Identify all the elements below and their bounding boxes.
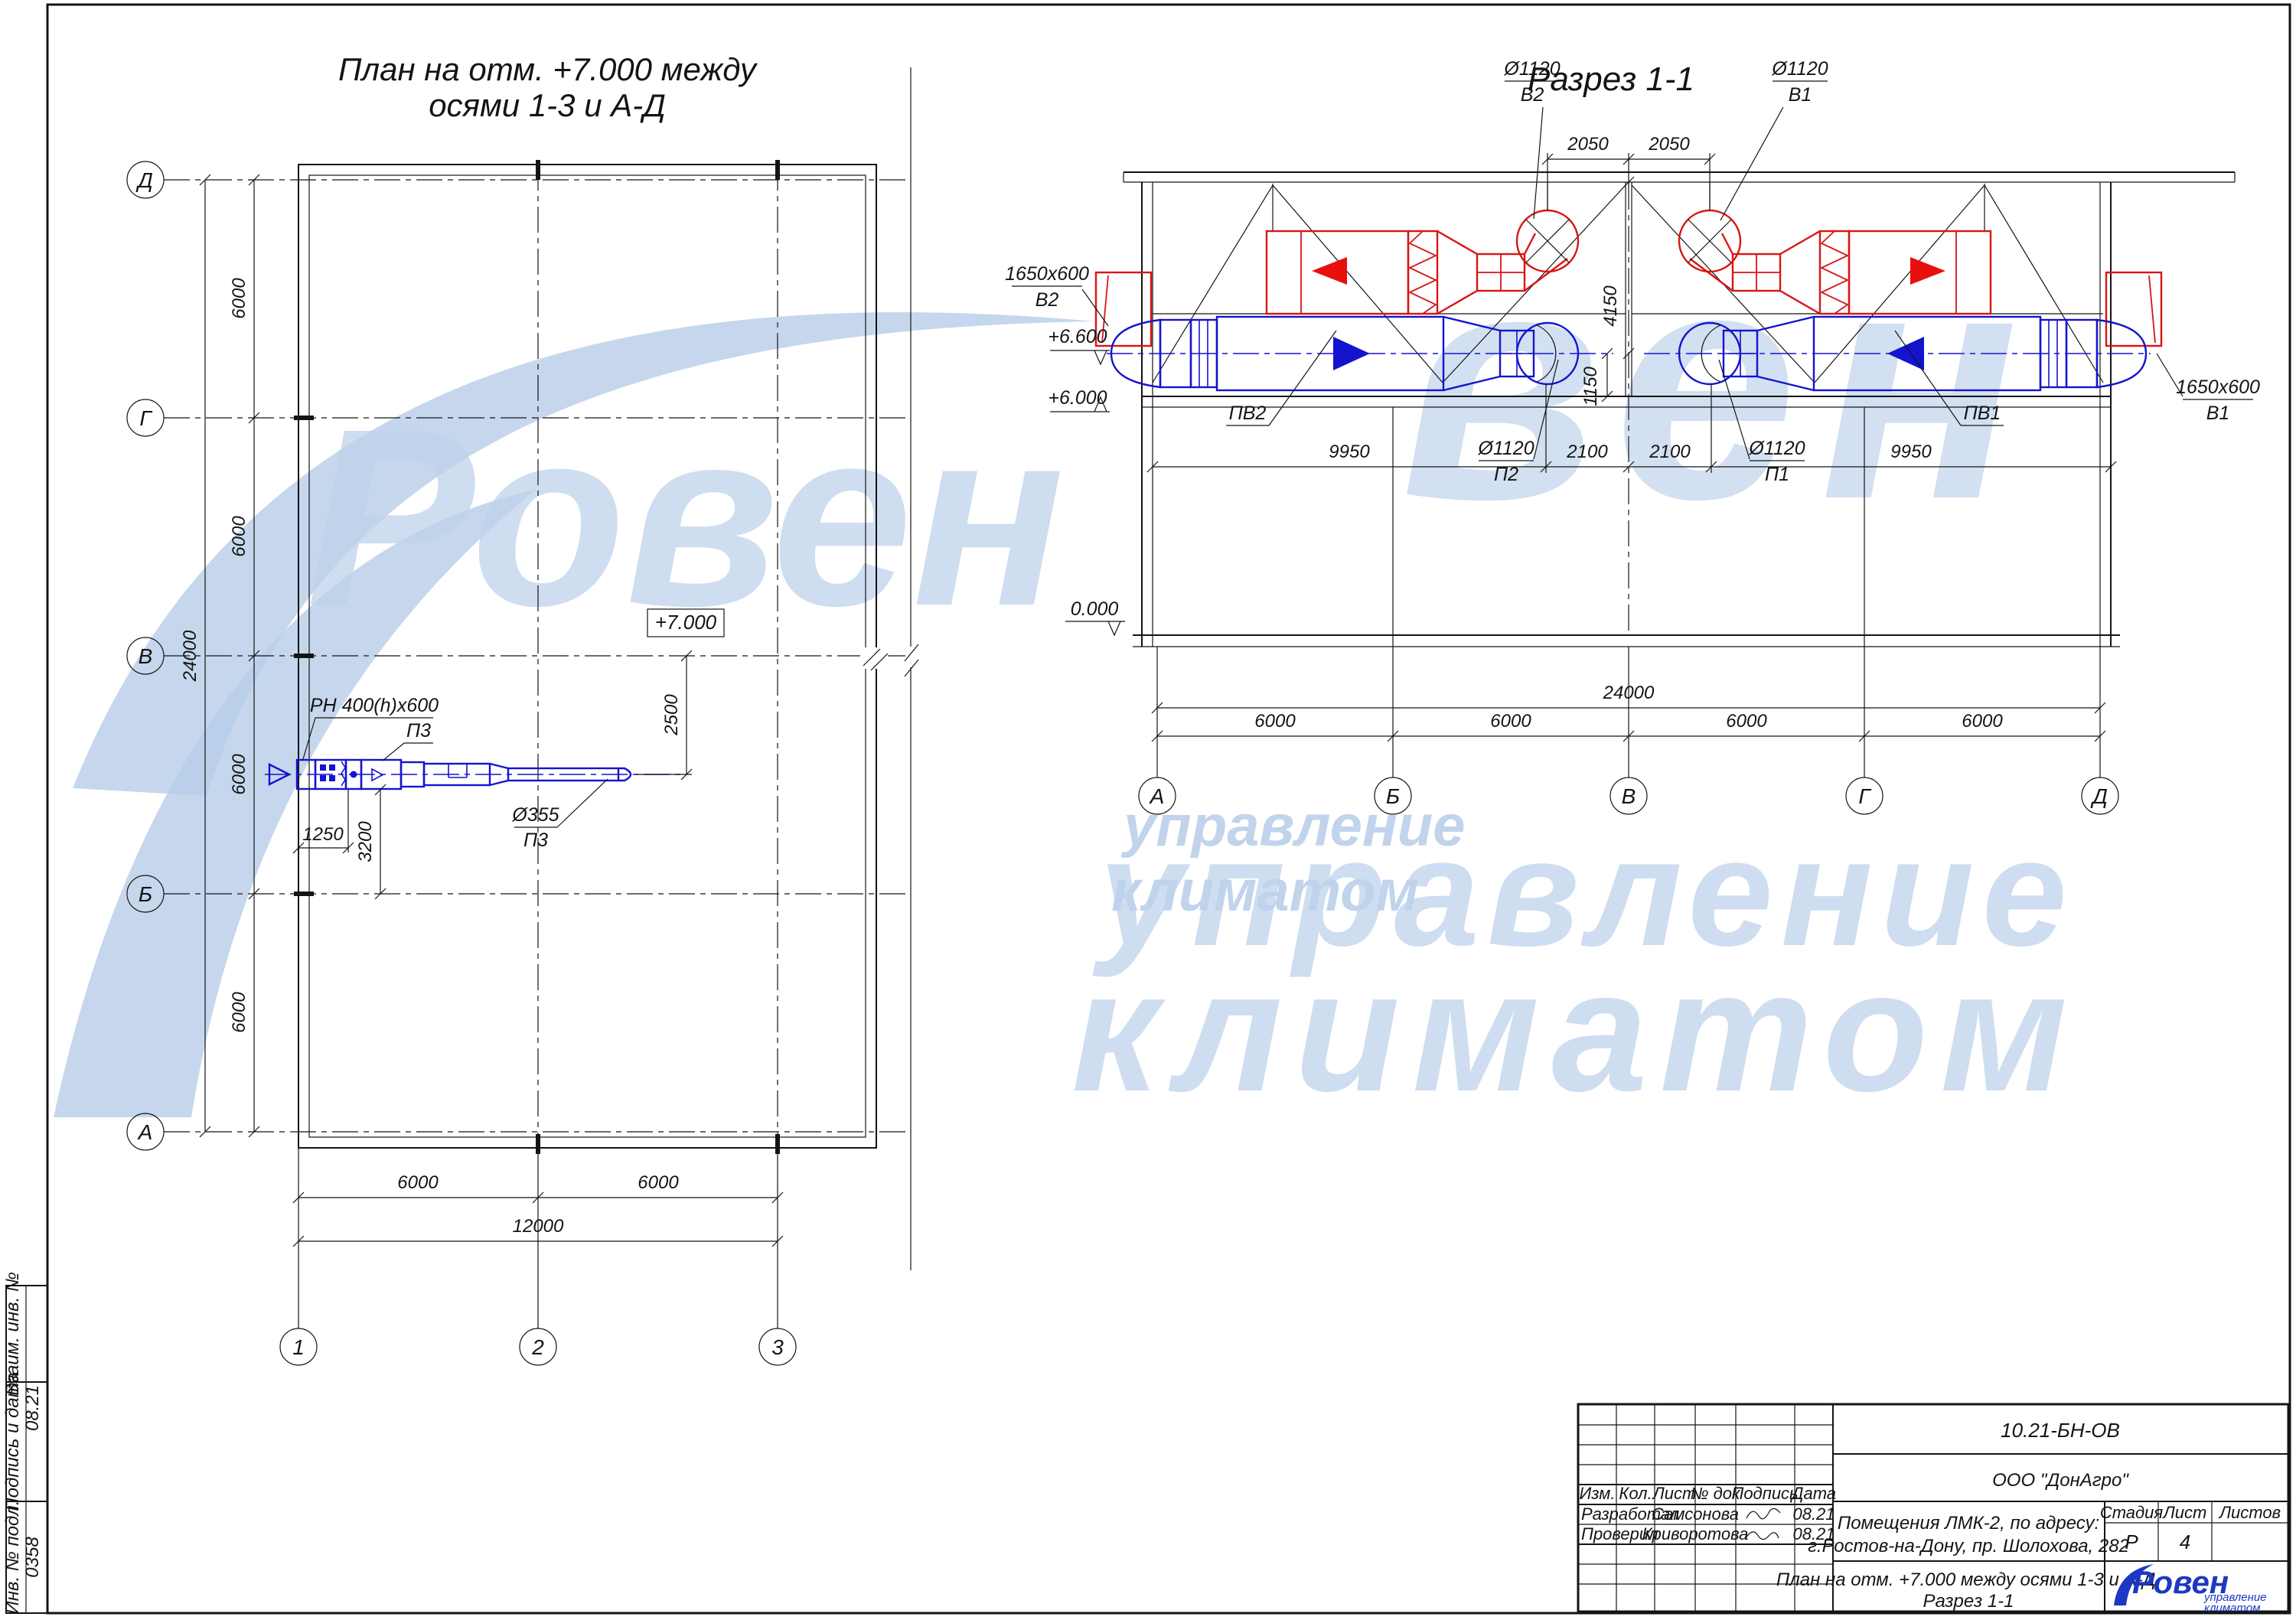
label-pv1: ПВ1 [1964,403,2001,424]
drawing-sheet: Ровен вен управление климатом управление… [0,0,2296,1620]
axis-bubble-d: Д [135,168,153,192]
svg-text:В: В [1622,784,1636,808]
label-out1: В1 [2206,403,2230,424]
svg-text:9950: 9950 [1329,442,1370,462]
roven-logo-sub2: климатом [2204,1602,2260,1615]
svg-text:Д: Д [2090,784,2108,808]
label-out1-size: 1650x600 [2176,376,2260,398]
label-p3-bottom: П3 [523,830,548,851]
svg-text:9950: 9950 [1890,442,1932,462]
svg-text:6000: 6000 [397,1172,439,1193]
label-v2-dia: Ø1120 [1503,58,1560,80]
svg-text:6000: 6000 [1490,711,1531,732]
svg-text:6000: 6000 [1962,711,2003,732]
svg-text:2100: 2100 [1649,442,1691,462]
svg-text:Г: Г [1858,784,1871,808]
sheets-header: Листов [2218,1503,2281,1522]
label-pv2: ПВ2 [1229,403,1267,424]
svg-text:2050: 2050 [1567,134,1609,155]
stamp-value-date: 08.21 [22,1385,43,1431]
svg-text:12000: 12000 [513,1216,564,1237]
row1-name: Самсонова [1652,1504,1739,1524]
sheet-value: 4 [2180,1530,2190,1553]
col-izm: Изм. [1580,1484,1616,1503]
dim-2500: 2500 [661,694,682,736]
svg-text:2050: 2050 [1648,134,1690,155]
object-line2: г.Ростов-на-Дону, пр. Шолохова, 282 [1808,1536,2129,1556]
svg-text:6000: 6000 [229,992,249,1033]
sheet-header: Лист [2162,1503,2207,1522]
elev-0: 0.000 [1071,598,1119,620]
dim-1250: 1250 [302,824,344,845]
label-duct-dia: Ø355 [511,804,559,826]
dim-4150: 4150 [1600,285,1621,327]
axis-bubble-2: 2 [531,1335,544,1359]
elev-66: +6.600 [1048,326,1107,347]
label-p3-top: П3 [406,720,431,742]
label-v2: В2 [1521,84,1544,106]
dim-1150: 1150 [1580,367,1601,406]
svg-text:6000: 6000 [229,754,249,795]
axis-bubble-b: Б [139,882,152,906]
svg-text:6000: 6000 [638,1172,679,1193]
plan-ahu-p3 [265,760,686,789]
watermark-ven: вен [1401,200,2042,568]
svg-text:2100: 2100 [1566,442,1608,462]
footer-line1: План на отм. +7.000 между осями 1-3 и А-… [1776,1569,2161,1590]
side-stamp: Взаим. инв. № Подпись и дата 08.21 Инв. … [2,1272,47,1614]
label-p1-dia: Ø1120 [1748,438,1805,459]
col-data: Дата [1789,1484,1836,1503]
axis-bubble-1: 1 [292,1335,305,1359]
plan-axis-bubbles-cols: 1 2 3 [280,1328,796,1365]
signature-2 [1745,1532,1779,1540]
signature-1 [1746,1508,1780,1518]
col-podpis: Подпись [1731,1484,1798,1503]
watermark-klim-big: климатом [1071,934,2080,1127]
object-line1: Помещения ЛМК-2, по адресу: [1838,1513,2099,1534]
svg-text:6000: 6000 [229,516,249,557]
elev-60: +6.000 [1048,387,1107,409]
svg-text:6000: 6000 [1254,711,1296,732]
drawing-canvas: Ровен вен управление климатом управление… [0,0,2296,1620]
doc-number: 10.21-БН-ОВ [2001,1419,2120,1442]
label-p2-dia: Ø1120 [1477,438,1534,459]
svg-text:А: А [1149,784,1165,808]
plan-title-line2: осями 1-3 и А-Д [429,87,666,123]
svg-text:6000: 6000 [229,278,249,319]
section-labels-right: 1650x600 В1 [2157,354,2260,424]
plan-title-line1: План на отм. +7.000 между [338,51,758,87]
roven-logo: Ровен управление климатом [2114,1564,2267,1615]
label-out2-size: 1650x600 [1005,263,1089,285]
col-kol: Кол. [1619,1484,1652,1503]
axis-bubble-a: А [137,1120,153,1144]
title-block: 10.21-БН-ОВ ООО "ДонАгро" Изм. Кол. Лист… [1578,1404,2288,1615]
row1-date: 08.21 [1792,1504,1835,1524]
stamp-label-podpis: Подпись и дата [2,1372,23,1511]
stage-value: Р [2125,1530,2138,1553]
label-out2: В2 [1035,289,1059,311]
svg-text:Б: Б [1386,784,1400,808]
dim-24000-section: 24000 [1603,683,1655,703]
label-v1: В1 [1789,84,1812,106]
plan-building [294,67,918,1270]
footer-line2: Разрез 1-1 [1923,1591,2014,1612]
company-name: ООО "ДонАгро" [1992,1470,2129,1491]
col-list: Лист [1652,1484,1697,1503]
stamp-label-inv: Инв. № подл. [2,1501,23,1615]
axis-bubble-v: В [139,644,153,668]
axis-bubble-g: Г [139,406,152,430]
svg-text:24000: 24000 [180,630,201,682]
stamp-value-inv: 0358 [22,1537,43,1578]
axis-bubble-3: 3 [771,1335,784,1359]
plan-elevation-box: +7.000 [655,611,717,634]
stage-header: Стадия [2100,1503,2164,1522]
svg-text:6000: 6000 [1726,711,1767,732]
dim-3200: 3200 [355,821,376,862]
label-v1-dia: Ø1120 [1771,58,1828,80]
label-grille: РН 400(h)x600 [310,695,439,716]
row2-name: Криворотова [1642,1524,1749,1543]
